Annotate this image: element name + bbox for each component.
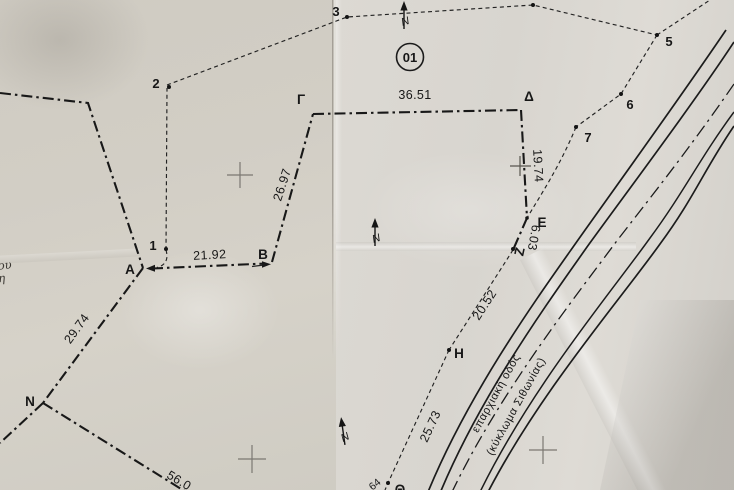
- point-3-dot: [345, 15, 349, 19]
- boundary-dashdot-lines: [0, 93, 527, 490]
- north-letter: N: [400, 15, 411, 29]
- line-2-3-4-5: [167, 5, 657, 85]
- north-letter: N: [339, 431, 351, 445]
- grid-cross: [238, 445, 266, 473]
- line-edge-to-alpha: [0, 93, 143, 268]
- survey-map-photo: 01 N N N 2 1 3 5 6 7 Α Β: [0, 0, 734, 490]
- point-2-label: 2: [152, 76, 159, 91]
- point-labels: 2 1 3 5 6 7: [149, 4, 672, 253]
- vertex-alpha-label: Α: [125, 262, 135, 277]
- distance-nu-south: 56.0: [164, 468, 193, 490]
- road-right-inner-line: [480, 112, 734, 490]
- station-points: [164, 3, 659, 485]
- point-6-label: 6: [626, 97, 633, 112]
- line-1-2: [166, 88, 167, 250]
- vertex-gamma-label: Γ: [297, 92, 305, 107]
- distance-alpha-beta: 21.92: [193, 247, 227, 263]
- north-arrow-top: N: [400, 1, 411, 29]
- point-1-label: 1: [149, 238, 156, 253]
- line-alpha-nu: [43, 268, 143, 403]
- vertex-epsilon-dot: [525, 216, 529, 220]
- vertex-delta-label: Δ: [524, 89, 534, 104]
- line-nu-to-bottom-edge: [43, 403, 186, 490]
- grid-cross: [227, 162, 253, 188]
- parcel-number-bubble: 01: [397, 44, 424, 71]
- grid-cross: [510, 156, 531, 176]
- point-1-dot: [164, 247, 168, 251]
- line-alpha-beta: [152, 264, 266, 269]
- point-3-label: 3: [332, 4, 339, 19]
- vertex-eta-label: Η: [454, 346, 464, 361]
- vertex-theta-label: Θ: [395, 482, 406, 490]
- north-arrow-middle: N: [371, 218, 382, 246]
- distance-eta-theta: 25.73: [417, 408, 444, 444]
- arrowhead-beta: [262, 261, 271, 268]
- line-5-6-7: [576, 35, 657, 127]
- survey-drawing: 01 N N N 2 1 3 5 6 7 Α Β: [0, 0, 734, 490]
- point-2-dot: [167, 85, 171, 89]
- parcel-number: 01: [403, 50, 417, 65]
- north-arrow-bottom: N: [337, 416, 352, 445]
- line-nu-to-left-edge: [0, 403, 43, 443]
- vertex-beta-label: Β: [258, 247, 268, 262]
- margin-text-line2: η: [0, 271, 6, 286]
- point-5-dot: [655, 33, 659, 37]
- point-7-label: 7: [584, 130, 591, 145]
- point-6-dot: [619, 92, 623, 96]
- road-name: επαρχιακή οδός (κύκλωμα Σιθωνίας): [470, 352, 548, 457]
- arrowhead-alpha: [146, 265, 155, 272]
- vertex-nu-label: Ν: [25, 394, 35, 409]
- line-5-to-top-edge: [657, 0, 710, 35]
- vertex-eta-dot: [447, 348, 451, 352]
- north-arrow-head: [371, 218, 378, 228]
- north-arrow-head: [400, 1, 407, 11]
- point-5-label: 5: [665, 34, 672, 49]
- line-epsilon-zeta: [513, 218, 527, 250]
- road-centerline: [452, 84, 734, 490]
- distance-gamma-delta: 36.51: [398, 88, 431, 102]
- vertex-theta-dot: [386, 481, 390, 485]
- line-gamma-delta: [313, 110, 521, 114]
- line-delta-epsilon: [521, 110, 527, 218]
- leader-1-to-alpha: [157, 250, 167, 268]
- point-7-dot: [574, 125, 578, 129]
- distance-delta-epsilon: 19.74: [530, 149, 546, 183]
- north-letter: N: [371, 232, 382, 246]
- point-4-dot: [531, 3, 535, 7]
- distance-epsilon-zeta: 6.03: [525, 224, 543, 252]
- north-arrow-head: [337, 417, 345, 427]
- margin-text: ου η: [0, 257, 12, 285]
- spot-value-label: 64: [367, 476, 384, 490]
- grid-cross: [529, 436, 557, 464]
- distance-alpha-nu: 29.74: [61, 311, 92, 346]
- distance-zeta-eta: 20.52: [470, 287, 500, 323]
